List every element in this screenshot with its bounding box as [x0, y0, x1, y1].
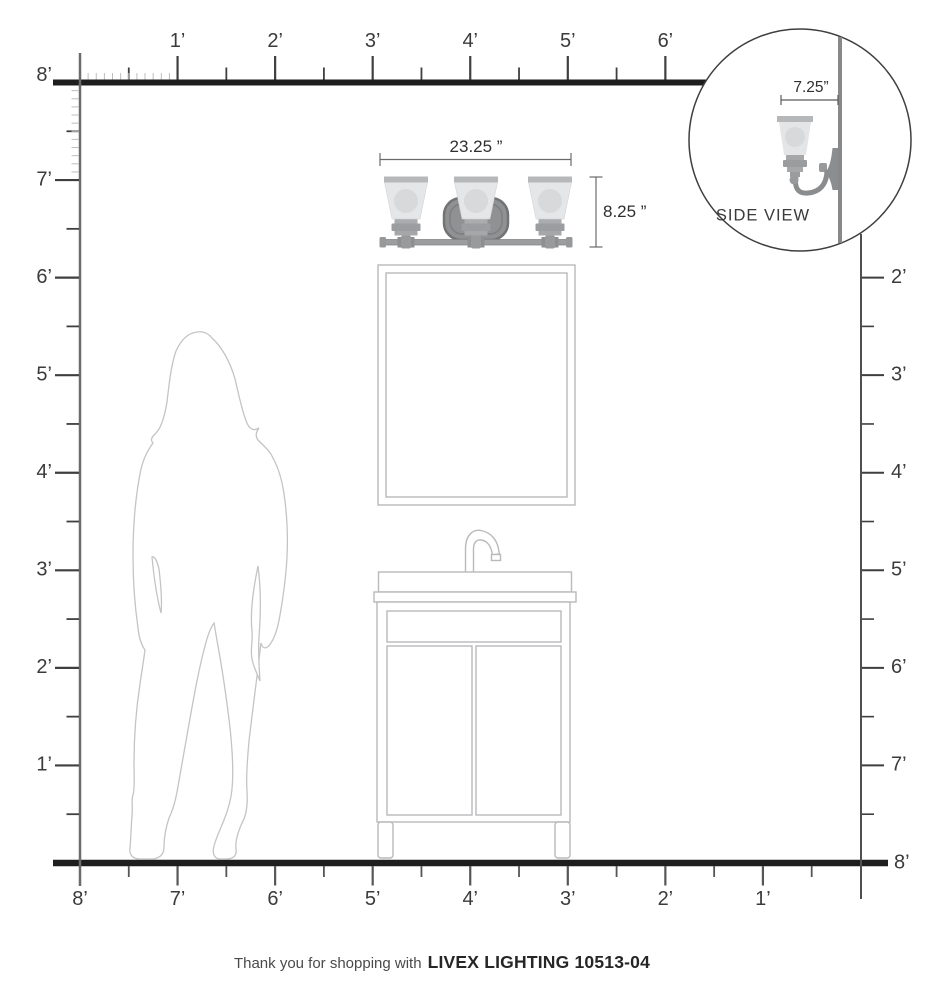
lamp-socket-base [465, 231, 488, 236]
sconce-socket [786, 155, 804, 160]
right-ruler-label: 2’ [891, 266, 907, 288]
faucet-spout-tip [492, 555, 501, 561]
sink-basin [379, 572, 572, 592]
bottom-ruler-label: 7’ [170, 888, 186, 910]
top-ruler-label: 2’ [267, 30, 283, 52]
silhouette-outline [130, 332, 288, 859]
cabinet-door-left [387, 646, 472, 815]
vanity-cabinet [374, 530, 576, 858]
lamp-socket-ring [536, 224, 565, 232]
lamp-socket-ring [462, 224, 491, 232]
left-ruler-label: 2’ [36, 656, 52, 678]
left-ruler-label: 7’ [36, 168, 52, 190]
human-silhouette [130, 332, 288, 859]
fixture-bar-cap-left [380, 237, 387, 248]
left-ruler: 8’7’6’5’4’3’2’1’ [36, 64, 79, 814]
left-ruler-label: 3’ [36, 559, 52, 581]
top-ruler: 1’2’3’4’5’6’ [88, 30, 673, 80]
lamp-bulb [394, 189, 418, 213]
caption: Thank you for shopping withLIVEX LIGHTIN… [234, 952, 650, 973]
cabinet-drawer-panel [387, 611, 561, 642]
right-ruler: 2’3’4’5’6’7’8’ [862, 266, 910, 873]
lamp-socket-base [395, 231, 418, 236]
left-ruler-label: 4’ [36, 461, 52, 483]
top-ruler-label: 1’ [170, 30, 186, 52]
width-dimension-label: 23.25 ” [450, 137, 503, 157]
lamp-shade-rim [384, 177, 428, 183]
height-dimension-label: 8.25 ” [603, 202, 646, 222]
bottom-ruler-label: 6’ [267, 888, 283, 910]
bottom-ruler-label: 4’ [462, 888, 478, 910]
mirror-inner-frame [386, 273, 567, 497]
bottom-ruler: 8’7’6’5’4’3’2’1’ [72, 866, 811, 910]
bottom-ruler-label: 8’ [72, 888, 88, 910]
sconce-stem [790, 172, 800, 177]
sconce-bulb [785, 127, 805, 147]
lamp [384, 177, 428, 249]
cabinet-leg-left [378, 822, 393, 858]
lamp-socket-base [539, 231, 562, 236]
right-ruler-label: 8’ [894, 851, 910, 873]
caption-regular-text: Thank you for shopping with [234, 955, 422, 972]
left-ruler-label: 8’ [36, 64, 52, 86]
sconce-shade-rim [777, 116, 813, 122]
fixture-lamps [384, 177, 572, 249]
side-view-title: SIDE VIEW [716, 207, 810, 226]
lamp-bulb [464, 189, 488, 213]
lamp-bar-hub [401, 236, 411, 249]
right-ruler-label: 6’ [891, 656, 907, 678]
lamp [528, 177, 572, 249]
bottom-ruler-label: 2’ [658, 888, 674, 910]
right-ruler-label: 3’ [891, 363, 907, 385]
sconce-socket-base [787, 167, 803, 172]
sconce-socket-ring [783, 160, 807, 167]
depth-dimension-label: 7.25” [793, 79, 828, 97]
lamp-shade-rim [454, 177, 498, 183]
lamp-bar-hub [545, 236, 555, 249]
top-ruler-label: 6’ [658, 30, 674, 52]
cabinet-door-right [476, 646, 561, 815]
cabinet-leg-right [555, 822, 570, 858]
top-ruler-label: 4’ [462, 30, 478, 52]
right-ruler-label: 5’ [891, 559, 907, 581]
lamp-socket-ring [392, 224, 421, 232]
lamp-shade-rim [528, 177, 572, 183]
mirror [378, 265, 575, 505]
fixture-bar-cap-right [566, 237, 573, 248]
lamp-bulb [538, 189, 562, 213]
left-ruler-label: 5’ [36, 363, 52, 385]
bottom-ruler-label: 1’ [755, 888, 771, 910]
left-ruler-label: 6’ [36, 266, 52, 288]
top-ruler-label: 5’ [560, 30, 576, 52]
bottom-ruler-label: 3’ [560, 888, 576, 910]
vanity-light-fixture [380, 177, 573, 249]
right-ruler-label: 7’ [891, 754, 907, 776]
countertop [374, 592, 576, 602]
caption-product-name: LIVEX LIGHTING 10513-04 [428, 952, 650, 972]
left-ruler-label: 1’ [36, 754, 52, 776]
top-ruler-label: 3’ [365, 30, 381, 52]
bottom-ruler-label: 5’ [365, 888, 381, 910]
right-ruler-label: 4’ [891, 461, 907, 483]
scale-diagram: 1’2’3’4’5’6’ 8’7’6’5’4’3’2’1’ 2’3’4’5’6’… [0, 0, 938, 1000]
lamp-bar-hub [471, 236, 481, 249]
